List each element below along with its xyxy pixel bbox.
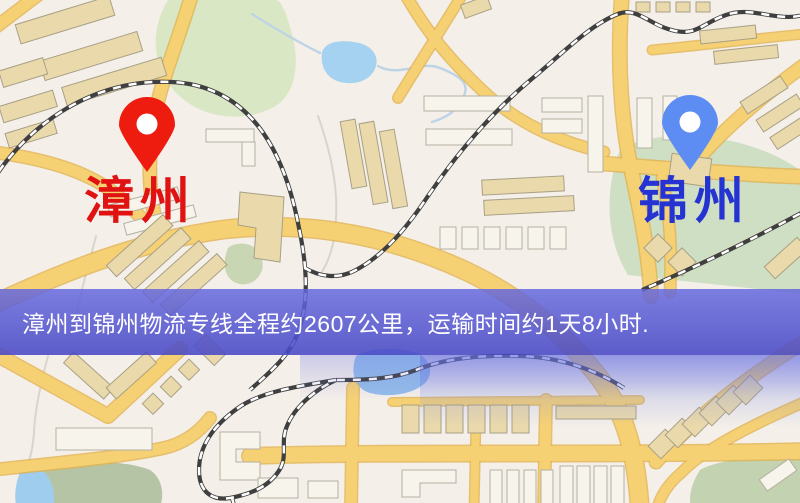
route-info-text: 漳州到锦州物流专线全程约2607公里，运输时间约1天8小时. — [0, 305, 649, 339]
origin-city-label: 漳州 — [84, 176, 196, 226]
route-info-banner: 漳州到锦州物流专线全程约2607公里，运输时间约1天8小时. — [0, 289, 800, 355]
red-map-pin-icon — [113, 96, 181, 176]
blue-map-pin-icon — [656, 94, 724, 174]
map-canvas: 漳州到锦州物流专线全程约2607公里，运输时间约1天8小时. 漳州 锦州 — [0, 0, 800, 503]
destination-city-label: 锦州 — [638, 176, 750, 226]
map-artwork — [0, 0, 800, 503]
